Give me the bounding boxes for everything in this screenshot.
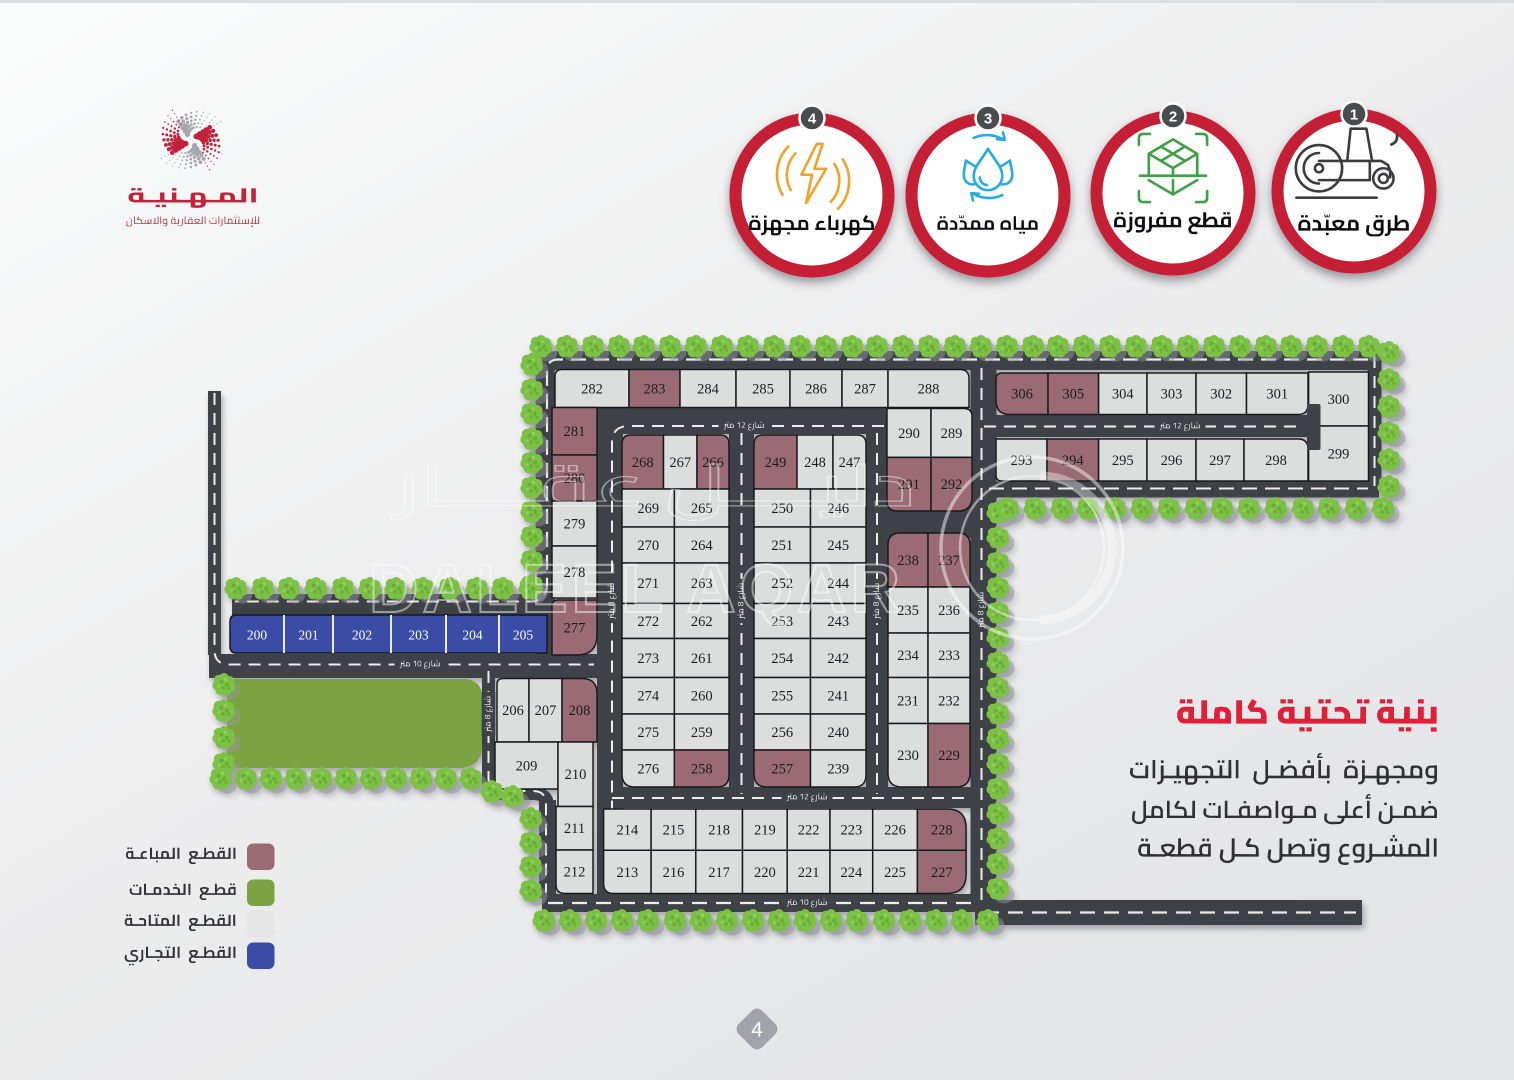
- svg-text:218: 218: [708, 823, 730, 839]
- svg-text:287: 287: [854, 381, 876, 397]
- svg-text:4: 4: [808, 111, 817, 128]
- svg-text:295: 295: [1112, 453, 1134, 469]
- svg-text:231: 231: [897, 693, 919, 709]
- svg-text:255: 255: [771, 689, 793, 705]
- svg-text:303: 303: [1161, 387, 1183, 403]
- svg-text:300: 300: [1328, 392, 1350, 408]
- svg-text:241: 241: [827, 689, 849, 705]
- svg-text:209: 209: [516, 758, 538, 774]
- svg-text:3: 3: [984, 111, 992, 128]
- svg-text:279: 279: [564, 516, 586, 532]
- svg-text:229: 229: [938, 748, 960, 764]
- svg-text:266: 266: [702, 455, 724, 471]
- svg-text:259: 259: [691, 725, 713, 741]
- svg-text:DALEEL AQAR: DALEEL AQAR: [369, 550, 904, 627]
- svg-text:201: 201: [298, 628, 318, 643]
- svg-text:283: 283: [644, 381, 666, 397]
- svg-text:267: 267: [669, 455, 691, 471]
- svg-text:1: 1: [1350, 107, 1358, 124]
- svg-text:216: 216: [663, 865, 685, 881]
- svg-text:275: 275: [637, 725, 659, 741]
- svg-text:226: 226: [884, 823, 906, 839]
- svg-text:200: 200: [247, 628, 268, 643]
- svg-text:246: 246: [827, 501, 849, 517]
- svg-text:225: 225: [884, 865, 906, 881]
- svg-text:297: 297: [1209, 453, 1231, 469]
- svg-text:213: 213: [617, 865, 639, 881]
- svg-text:268: 268: [632, 455, 654, 471]
- svg-text:227: 227: [931, 865, 953, 881]
- svg-text:212: 212: [564, 865, 586, 881]
- svg-text:290: 290: [898, 426, 920, 442]
- svg-text:233: 233: [938, 648, 960, 664]
- svg-text:257: 257: [771, 761, 793, 777]
- svg-text:298: 298: [1265, 453, 1287, 469]
- svg-text:220: 220: [754, 865, 776, 881]
- svg-text:260: 260: [691, 689, 713, 705]
- svg-text:256: 256: [771, 725, 793, 741]
- svg-text:208: 208: [569, 703, 591, 719]
- svg-text:215: 215: [663, 823, 685, 839]
- svg-text:240: 240: [827, 725, 849, 741]
- svg-text:202: 202: [352, 628, 372, 643]
- svg-text:288: 288: [918, 381, 940, 397]
- svg-text:281: 281: [564, 424, 586, 440]
- svg-text:219: 219: [754, 823, 776, 839]
- svg-text:224: 224: [841, 865, 864, 881]
- svg-text:210: 210: [565, 767, 587, 783]
- svg-text:2: 2: [1169, 109, 1177, 126]
- svg-text:206: 206: [502, 703, 524, 719]
- svg-text:234: 234: [897, 648, 920, 664]
- svg-text:258: 258: [691, 761, 713, 777]
- svg-text:207: 207: [535, 703, 557, 719]
- svg-text:302: 302: [1210, 387, 1232, 403]
- svg-text:230: 230: [897, 748, 919, 764]
- svg-text:248: 248: [804, 455, 826, 471]
- svg-text:214: 214: [617, 823, 640, 839]
- svg-text:276: 276: [637, 761, 659, 777]
- svg-text:282: 282: [581, 381, 603, 397]
- svg-text:254: 254: [771, 651, 794, 667]
- svg-text:222: 222: [798, 823, 820, 839]
- svg-text:296: 296: [1161, 453, 1183, 469]
- svg-text:203: 203: [408, 628, 429, 643]
- svg-text:299: 299: [1328, 446, 1350, 462]
- svg-text:305: 305: [1062, 387, 1084, 403]
- svg-text:301: 301: [1266, 387, 1288, 403]
- svg-text:242: 242: [827, 651, 849, 667]
- svg-text:304: 304: [1112, 387, 1135, 403]
- svg-text:261: 261: [691, 651, 713, 667]
- svg-text:236: 236: [938, 603, 960, 619]
- svg-text:232: 232: [938, 693, 960, 709]
- svg-text:249: 249: [765, 455, 787, 471]
- svg-text:221: 221: [798, 865, 820, 881]
- svg-text:273: 273: [637, 651, 659, 667]
- svg-text:306: 306: [1011, 387, 1033, 403]
- svg-text:205: 205: [513, 628, 534, 643]
- svg-text:223: 223: [841, 823, 863, 839]
- svg-text:228: 228: [931, 823, 953, 839]
- svg-text:239: 239: [827, 761, 849, 777]
- svg-text:286: 286: [805, 381, 827, 397]
- svg-text:250: 250: [771, 501, 793, 517]
- svg-text:204: 204: [462, 628, 483, 643]
- svg-text:217: 217: [708, 865, 730, 881]
- svg-text:4: 4: [751, 1019, 763, 1042]
- svg-text:285: 285: [752, 381, 774, 397]
- svg-text:211: 211: [564, 821, 585, 837]
- svg-text:284: 284: [697, 381, 720, 397]
- svg-text:274: 274: [637, 689, 660, 705]
- svg-text:289: 289: [941, 426, 963, 442]
- svg-text:269: 269: [637, 501, 659, 517]
